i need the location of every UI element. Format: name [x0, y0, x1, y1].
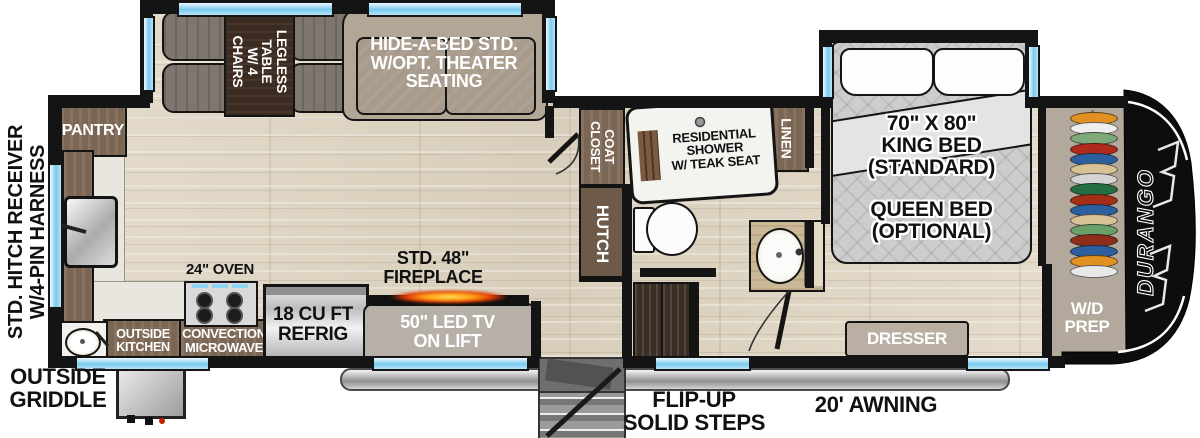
top-wall-front: [1036, 96, 1128, 108]
cap-accent-glyph: [1145, 246, 1170, 311]
hutch-label: HUTCH: [593, 205, 611, 263]
pantry-label: PANTRY: [62, 123, 124, 140]
wd-side-wall: [1042, 264, 1052, 358]
rear-window: [48, 163, 63, 309]
pillow: [840, 48, 934, 96]
tv-cabinet: 50" LED TV ON LIFT: [363, 303, 537, 362]
hall-bottom-window: [654, 356, 751, 371]
dinette-table: LEGLESS TABLE W/ 4 CHAIRS: [224, 5, 295, 117]
dinette-label: LEGLESS TABLE W/ 4 CHAIRS: [230, 28, 289, 95]
stair-railing: [640, 268, 716, 277]
linen-label: LINEN: [779, 118, 794, 159]
bed-left-window: [821, 45, 834, 99]
clothes-hanger: [1070, 265, 1118, 278]
vanity-sink: [756, 228, 804, 284]
fireplace-label: STD. 48" FIREPLACE: [356, 243, 510, 293]
bed-slide-top-wall: [819, 30, 1038, 43]
cap-accent-glyph: [1153, 142, 1178, 207]
bed-right-window: [1027, 45, 1040, 99]
outside-sink: [65, 328, 101, 357]
toilet-bowl: [646, 202, 698, 256]
living-slide-right-window: [544, 16, 557, 92]
king-bed: 70" X 80" KING BED (STANDARD) QUEEN BED …: [831, 41, 1032, 264]
wd-prep-label: W/D PREP: [1050, 290, 1124, 346]
griddle-knob: [127, 415, 135, 423]
tv-side-wall: [531, 301, 541, 358]
flip-steps-label: FLIP-UP SOLID STEPS: [618, 386, 770, 438]
floorplan-canvas: STD. HITCH RECEIVER W/4-PIN HARNESS OUTS…: [0, 0, 1200, 438]
shower: RESIDENTIAL SHOWER W/ TEAK SEAT: [625, 97, 779, 205]
range-glass-strip: [212, 284, 228, 288]
bath-door-jamb: [545, 106, 554, 138]
hutch: HUTCH: [579, 186, 625, 282]
stair-side-wall: [689, 282, 699, 358]
sofa-window: [367, 1, 523, 17]
hutch-base-wall: [579, 276, 623, 282]
refrigerator: 18 CU FT REFRIG: [263, 284, 369, 365]
sofa-label: HIDE-A-BED STD. W/OPT. THEATER SEATING: [352, 27, 536, 99]
brand-logo: DURANGO: [1133, 168, 1158, 296]
burner: [226, 307, 243, 324]
bath-hall-wall: [622, 184, 632, 358]
hitch-label-line2: W/4-PIN HARNESS: [26, 97, 50, 367]
kitchen-sink: [64, 196, 118, 268]
outside-griddle-unit: [116, 363, 186, 419]
dresser-label: DRESSER: [867, 330, 947, 348]
awning-label: 20' AWNING: [804, 390, 948, 420]
range-glass-strip: [192, 284, 208, 288]
linen-side-wall: [805, 104, 814, 168]
bath-bedroom-wall: [821, 104, 830, 224]
oven-label: 24" OVEN: [168, 260, 272, 280]
teak-seat: [637, 130, 660, 181]
shower-label: RESIDENTIAL SHOWER W/ TEAK SEAT: [658, 108, 771, 189]
microwave-label: CONVECTION MICROWAVE: [182, 327, 266, 354]
griddle-indicator: [159, 418, 165, 424]
vanity-side-wall: [805, 220, 814, 288]
coat-closet: COAT CLOSET: [579, 108, 625, 186]
kitchen-counter-bottom: [90, 281, 192, 323]
hitch-label-line1: STD. HITCH RECEIVER: [4, 97, 28, 367]
range-cooktop: [184, 281, 258, 327]
burner: [196, 307, 213, 324]
pillow: [933, 48, 1025, 96]
dinette-window: [177, 1, 334, 17]
tv-bottom-window: [372, 356, 529, 371]
top-wall-rear: [48, 95, 150, 108]
entry-landing: [538, 357, 626, 393]
living-slide-left-window: [142, 16, 155, 92]
top-wall-mid: [553, 96, 833, 108]
flip-up-steps: [538, 389, 626, 438]
outside-griddle-label: OUTSIDE GRIDDLE: [4, 364, 112, 414]
bed-primary-label: 70" X 80" KING BED (STANDARD): [833, 109, 1030, 183]
outside-kitchen-label: OUTSIDE KITCHEN: [116, 328, 169, 354]
griddle-knob: [145, 417, 153, 425]
coat-closet-label: COAT CLOSET: [588, 122, 615, 173]
fridge-label: 18 CU FT REFRIG: [266, 297, 360, 353]
wardrobe-side-wall: [1038, 106, 1046, 266]
tv-label: 50" LED TV ON LIFT: [365, 309, 530, 355]
bedroom-steps: [633, 282, 663, 362]
bedroom-bottom-window: [966, 356, 1050, 371]
hide-a-bed-sofa: HIDE-A-BED STD. W/OPT. THEATER SEATING: [342, 7, 548, 121]
range-glass-strip: [232, 284, 248, 288]
bed-optional-label: QUEEN BED (OPTIONAL): [833, 195, 1030, 247]
dresser: DRESSER: [845, 321, 969, 357]
